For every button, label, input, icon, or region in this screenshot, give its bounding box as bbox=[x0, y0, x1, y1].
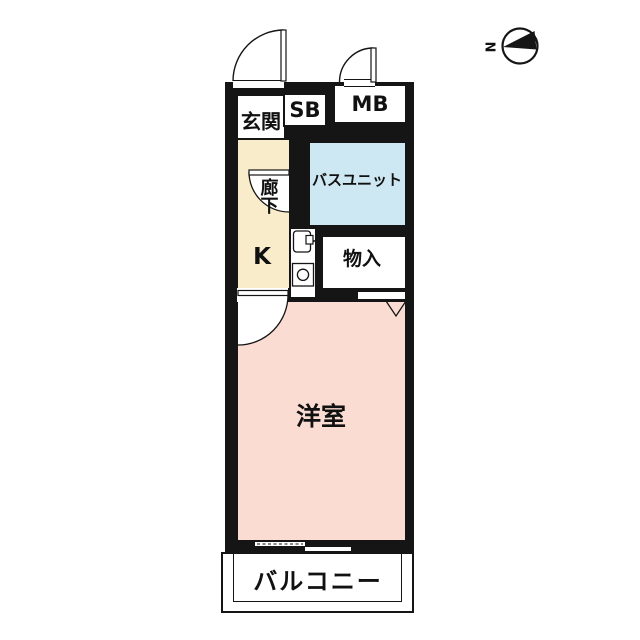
western-room-label: 洋室 bbox=[296, 404, 346, 430]
storage-door-lintel bbox=[358, 291, 405, 300]
north-arrow-icon bbox=[503, 29, 538, 64]
balcony-label: バルコニー bbox=[253, 569, 383, 594]
storage-label: 物入 bbox=[343, 250, 381, 270]
meter-box-threshold bbox=[344, 79, 375, 87]
meter-box-door-swing-icon bbox=[340, 48, 377, 82]
entrance-door-swing-icon bbox=[233, 30, 286, 81]
kitchen-label: K bbox=[253, 245, 271, 269]
genkan-label: 玄関 bbox=[241, 112, 281, 133]
sliding-window-right-panel bbox=[304, 546, 352, 552]
corridor-label: 廊下 bbox=[258, 178, 277, 214]
meter-box-label: MB bbox=[352, 93, 389, 115]
bath-unit-label: バスユニット bbox=[312, 173, 402, 189]
shoe-box-label: SB bbox=[289, 99, 320, 121]
floor-plan: N 玄関 SB MB バスユニット 廊下 K 物入 洋室 バルコニー bbox=[0, 0, 640, 640]
genkan-corridor-divider bbox=[238, 138, 289, 140]
sliding-window-left-panel bbox=[254, 541, 306, 547]
kitchen-fixture-strip bbox=[289, 227, 317, 299]
entrance-threshold bbox=[233, 80, 284, 89]
western-room-door-opening bbox=[237, 288, 288, 302]
north-label: N bbox=[482, 42, 497, 53]
